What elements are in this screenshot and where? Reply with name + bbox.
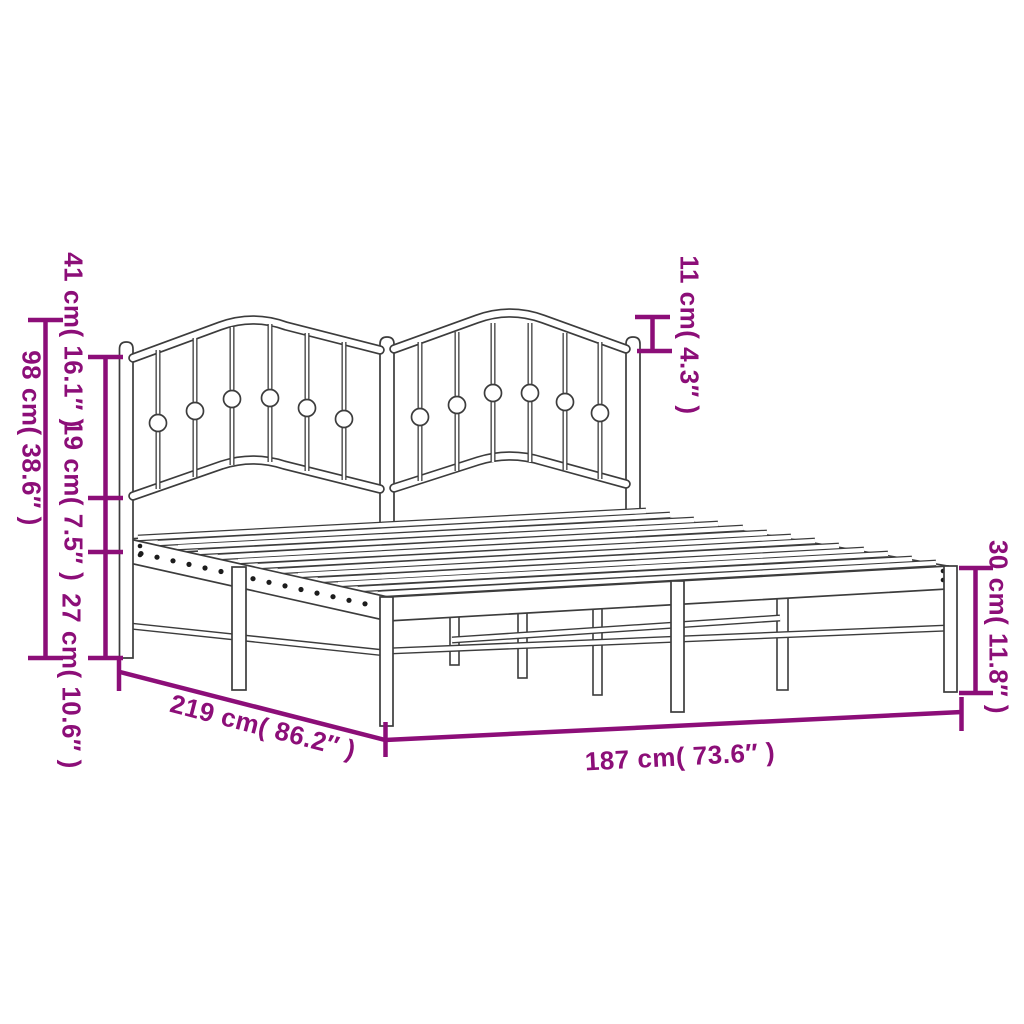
- leg-side-middle: [232, 567, 246, 690]
- dimension-label-headboard-middle-height: 19 cm( 7.5″ ): [58, 421, 89, 582]
- dimension-label-headboard-wave-height: 11 cm( 4.3″ ): [674, 255, 705, 414]
- dimension-label-frame-height: 30 cm( 11.8″ ): [983, 540, 1014, 714]
- leg-front-right-corner: [944, 566, 957, 692]
- product-dimension-diagram: 98 cm( 38.6″ ) 41 cm( 16.1″ ) 19 cm( 7.5…: [0, 0, 1024, 1024]
- leg-front-left-corner: [380, 597, 393, 726]
- cross-braces: [130, 626, 948, 653]
- dimension-line-headboard-segments: [88, 357, 123, 658]
- dimension-label-headboard-upper-height: 41 cm( 16.1″ ): [58, 252, 89, 428]
- headboard-spindle-balls: [150, 385, 609, 432]
- leg-front-middle: [671, 581, 684, 712]
- headboard-middle-post: [380, 337, 394, 542]
- back-leg: [593, 605, 602, 695]
- dimension-label-total-height: 98 cm( 38.6″ ): [16, 350, 47, 526]
- dimension-label-headboard-lower-height: 27 cm( 10.6″ ): [56, 593, 87, 769]
- headboard-right-post: [626, 337, 640, 522]
- bed-frame-drawing: [0, 0, 1024, 1024]
